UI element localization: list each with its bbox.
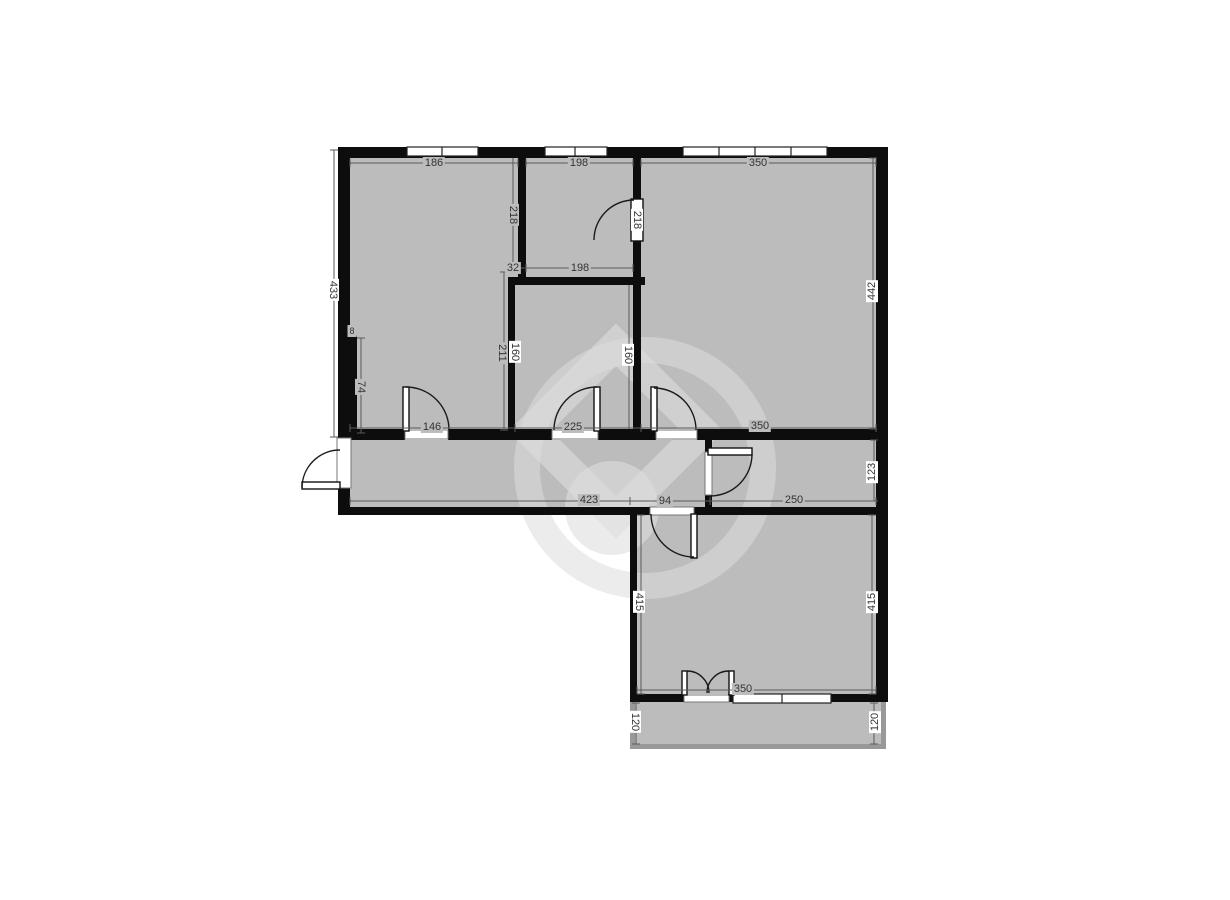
doorway-french bbox=[684, 695, 729, 702]
balcony bbox=[632, 702, 884, 746]
wall-pilaster-left bbox=[338, 336, 357, 440]
wall-mid bbox=[697, 429, 888, 440]
doorway-bottomroom bbox=[650, 507, 694, 515]
balcony-wall-bottom bbox=[630, 744, 886, 749]
wall-mid bbox=[448, 429, 552, 440]
floor-plan-drawing bbox=[0, 0, 1230, 900]
room-bottom bbox=[637, 515, 876, 694]
door-leaf-rightroom bbox=[651, 387, 657, 431]
balcony-wall-right bbox=[881, 702, 886, 749]
door-leaf-corridor bbox=[708, 448, 752, 455]
door-leaf-midroom bbox=[631, 199, 643, 241]
window-topmiddle bbox=[545, 147, 607, 156]
floor-plan-canvas: 1861983504334422182183219821116016087414… bbox=[0, 0, 1230, 900]
wall-bottomroom-bottom bbox=[630, 694, 684, 702]
room-top-middle bbox=[526, 158, 633, 277]
wall-midroom-right bbox=[633, 241, 641, 440]
door-leaf-french-left bbox=[682, 671, 687, 695]
door-leaf-entrance bbox=[302, 482, 340, 489]
wall-hall-bottom bbox=[694, 507, 888, 515]
doorway-smallroom bbox=[552, 430, 598, 439]
wall-mid bbox=[598, 429, 656, 440]
wall-leftroom-right bbox=[518, 158, 526, 277]
wall-bottomroom-left bbox=[630, 507, 637, 702]
wall-midroom-right bbox=[633, 158, 641, 199]
balcony-wall-left bbox=[630, 702, 635, 748]
door-leaf-bottomroom bbox=[691, 514, 697, 558]
door-leaf-smallroom bbox=[594, 387, 600, 431]
wall-outer-right bbox=[876, 147, 888, 702]
door-leaf-french-right bbox=[729, 671, 734, 695]
doorway-entrance bbox=[337, 438, 351, 488]
doorway-corridor bbox=[705, 452, 712, 495]
doorway-rightroom bbox=[656, 430, 697, 439]
doorway-leftroom bbox=[405, 430, 448, 439]
wall-smallroom-left bbox=[508, 277, 515, 440]
room-fill-layer bbox=[350, 158, 884, 746]
wall-smallroom-top bbox=[508, 277, 645, 285]
room-top-left bbox=[350, 158, 518, 429]
wall-bottomroom-bottom bbox=[828, 694, 888, 702]
door-leaf-leftroom bbox=[403, 387, 409, 431]
wall-hall-bottom bbox=[338, 507, 650, 515]
